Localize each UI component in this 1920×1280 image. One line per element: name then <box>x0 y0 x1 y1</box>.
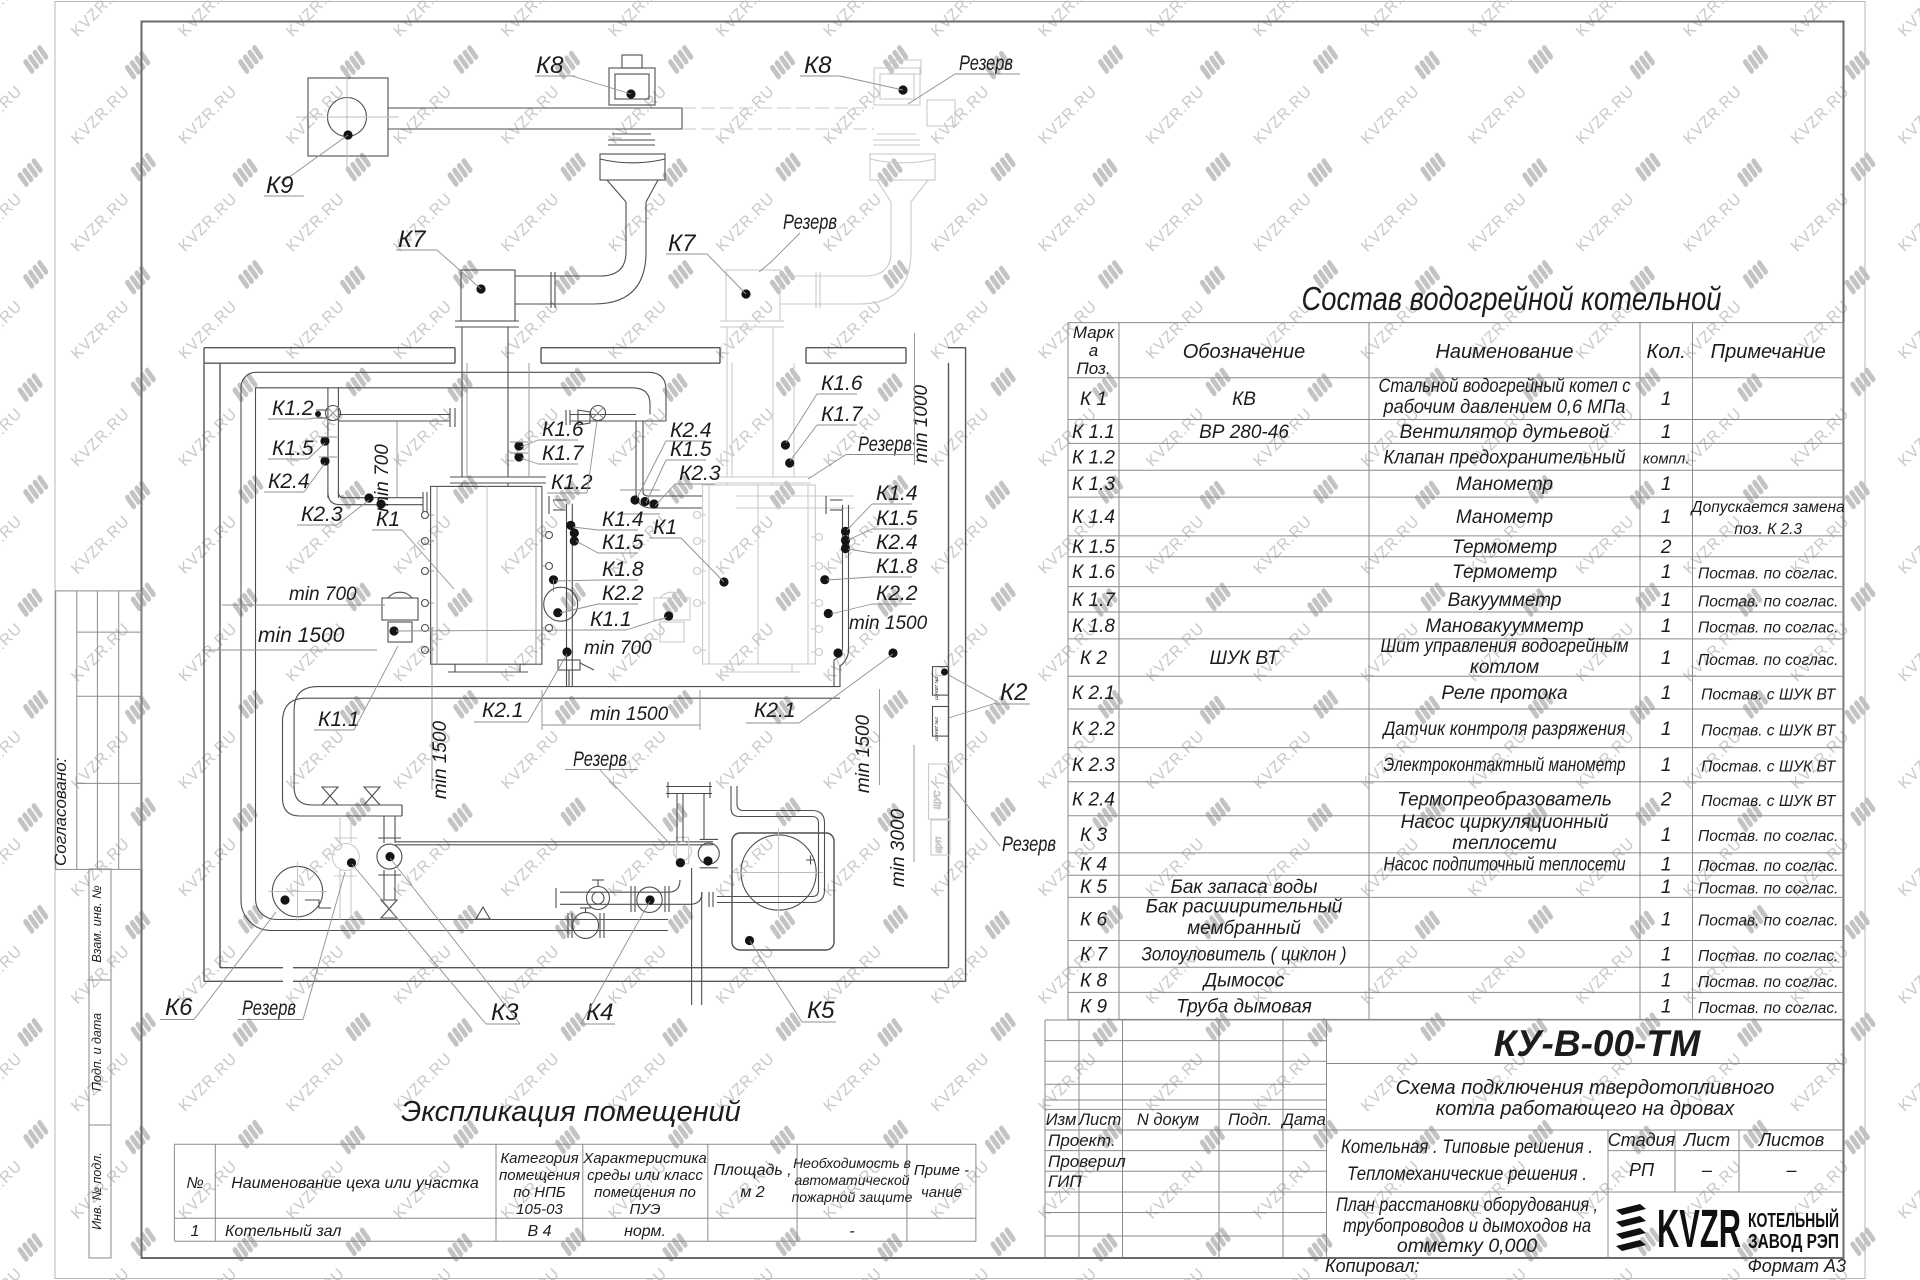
svg-text:К2.3: К2.3 <box>301 503 343 526</box>
svg-text:К 1.7: К 1.7 <box>1072 590 1116 611</box>
svg-text:КВ: КВ <box>1232 389 1256 410</box>
svg-text:Подп.: Подп. <box>1228 1111 1272 1129</box>
svg-text:-: - <box>849 1223 854 1240</box>
svg-text:–: – <box>1785 1160 1797 1180</box>
svg-text:рабочим давлением 0,6 МПа: рабочим давлением 0,6 МПа <box>1383 397 1626 418</box>
svg-text:Марк: Марк <box>1073 323 1115 342</box>
svg-text:Котельная . Типовые решения .: Котельная . Типовые решения . <box>1341 1136 1593 1158</box>
svg-text:а: а <box>1089 341 1098 360</box>
svg-text:чание: чание <box>921 1184 962 1201</box>
svg-text:среды или класс: среды или класс <box>587 1167 703 1184</box>
svg-text:1: 1 <box>1661 648 1672 669</box>
svg-text:КОТЕЛЬНЫЙ: КОТЕЛЬНЫЙ <box>1748 1208 1839 1232</box>
svg-text:К 1.1: К 1.1 <box>1072 422 1115 443</box>
svg-text:1: 1 <box>1661 683 1672 704</box>
svg-text:Подп. и дата: Подп. и дата <box>90 1013 104 1091</box>
svg-text:ВР 280-46: ВР 280-46 <box>1199 422 1289 443</box>
svg-text:min 1500: min 1500 <box>853 714 874 793</box>
svg-text:ШУК ВТ: ШУК ВТ <box>1209 648 1280 669</box>
svg-text:К8: К8 <box>536 52 564 79</box>
svg-text:ШУКВТ №2: ШУКВТ №2 <box>934 717 939 741</box>
svg-text:Резерв: Резерв <box>1002 833 1056 856</box>
svg-text:min 700: min 700 <box>289 584 357 605</box>
svg-text:Изм: Изм <box>1046 1111 1077 1129</box>
svg-text:min 700: min 700 <box>584 638 652 659</box>
svg-text:Шит управления водогрейным: Шит управления водогрейным <box>1381 636 1629 657</box>
svg-text:К 1.2: К 1.2 <box>1072 447 1115 468</box>
svg-text:К1.6: К1.6 <box>821 372 863 395</box>
svg-text:К1.4: К1.4 <box>876 482 918 505</box>
svg-text:Лист: Лист <box>1683 1130 1730 1150</box>
svg-text:Примечание: Примечание <box>1711 341 1826 363</box>
svg-text:К2.2: К2.2 <box>876 582 918 605</box>
svg-text:Термопреобразователь: Термопреобразователь <box>1397 789 1612 810</box>
svg-text:ЩУС: ЩУС <box>933 791 942 809</box>
svg-text:Резерв: Резерв <box>783 211 837 234</box>
svg-text:компл.: компл. <box>1643 450 1690 467</box>
svg-text:котла работающего на дровах: котла работающего на дровах <box>1436 1098 1736 1120</box>
svg-text:К2.3: К2.3 <box>679 462 721 485</box>
svg-text:Проект.: Проект. <box>1048 1131 1116 1150</box>
svg-text:ПУЭ: ПУЭ <box>629 1201 660 1218</box>
svg-text:Насос подпиточный теплосети: Насос подпиточный теплосети <box>1384 855 1626 876</box>
svg-text:К1.8: К1.8 <box>602 558 644 581</box>
svg-text:котлом: котлом <box>1470 657 1539 678</box>
svg-text:Листов: Листов <box>1758 1130 1825 1150</box>
svg-text:помещения по: помещения по <box>594 1184 696 1201</box>
svg-text:min 1500: min 1500 <box>258 624 345 647</box>
svg-text:м 2: м 2 <box>740 1184 764 1201</box>
svg-text:Дымосос: Дымосос <box>1202 970 1285 991</box>
svg-text:min 1500: min 1500 <box>590 704 669 725</box>
svg-text:К1.1: К1.1 <box>590 608 632 631</box>
svg-text:К6: К6 <box>165 994 193 1021</box>
svg-text:К2.1: К2.1 <box>754 699 796 722</box>
svg-text:Постав. по соглас.: Постав. по соглас. <box>1698 974 1838 991</box>
svg-text:норм.: норм. <box>624 1223 666 1240</box>
svg-text:Датчик контроля разряжения: Датчик контроля разряжения <box>1382 719 1626 740</box>
svg-text:Манометр: Манометр <box>1456 474 1553 495</box>
svg-text:Вентилятор дутьевой: Вентилятор дутьевой <box>1400 422 1610 443</box>
svg-text:К 9: К 9 <box>1080 996 1107 1017</box>
svg-text:Согласовано:: Согласовано: <box>51 757 70 866</box>
svg-text:Резерв: Резерв <box>858 433 912 456</box>
svg-text:Лист: Лист <box>1078 1111 1121 1129</box>
svg-text:К1.5: К1.5 <box>670 438 712 461</box>
svg-text:К1.4: К1.4 <box>602 508 644 531</box>
svg-text:Постав. по соглас.: Постав. по соглас. <box>1698 619 1838 636</box>
svg-text:2: 2 <box>1660 537 1672 558</box>
svg-text:Постав. с ШУК ВТ: Постав. с ШУК ВТ <box>1701 793 1837 810</box>
svg-text:Проверил: Проверил <box>1048 1152 1126 1171</box>
svg-text:Постав. с ШУК ВТ: Постав. с ШУК ВТ <box>1701 722 1837 739</box>
svg-text:теплосети: теплосети <box>1452 833 1557 854</box>
svg-text:КУ-В-00-ТМ: КУ-В-00-ТМ <box>1494 1023 1702 1064</box>
svg-text:К7: К7 <box>398 226 427 253</box>
svg-text:К 2.2: К 2.2 <box>1072 719 1115 740</box>
svg-text:2: 2 <box>1660 789 1672 810</box>
svg-text:К1.8: К1.8 <box>876 555 918 578</box>
svg-text:К2.4: К2.4 <box>268 470 310 493</box>
svg-text:К1.7: К1.7 <box>542 442 585 465</box>
svg-text:Состав водогрейной котельной: Состав водогрейной котельной <box>1302 280 1722 317</box>
svg-text:1: 1 <box>1661 970 1672 991</box>
svg-text:отметку 0,000: отметку 0,000 <box>1397 1235 1537 1257</box>
svg-text:Насос циркуляционный: Насос циркуляционный <box>1401 812 1609 833</box>
svg-text:К 6: К 6 <box>1080 910 1107 931</box>
svg-text:1: 1 <box>1661 719 1672 740</box>
svg-text:К1.5: К1.5 <box>272 437 314 460</box>
svg-text:1: 1 <box>1661 944 1672 965</box>
svg-text:пожарной защите: пожарной защите <box>792 1189 913 1205</box>
svg-text:Поз.: Поз. <box>1076 359 1110 378</box>
svg-text:К2.4: К2.4 <box>876 531 918 554</box>
svg-text:Реле протока: Реле протока <box>1441 683 1567 704</box>
svg-text:1: 1 <box>1661 616 1672 637</box>
svg-text:1: 1 <box>1661 855 1672 876</box>
svg-text:ЩУП: ЩУП <box>936 836 943 853</box>
svg-text:К3: К3 <box>491 999 519 1026</box>
svg-text:К 5: К 5 <box>1080 877 1107 898</box>
svg-text:К 1.5: К 1.5 <box>1072 537 1115 558</box>
svg-text:Термометр: Термометр <box>1452 537 1557 558</box>
svg-text:N докум: N докум <box>1137 1111 1199 1129</box>
svg-text:Приме -: Приме - <box>914 1162 969 1179</box>
svg-text:Термометр: Термометр <box>1452 562 1557 583</box>
svg-text:Постав. по соглас.: Постав. по соглас. <box>1698 652 1838 669</box>
svg-text:К 8: К 8 <box>1080 970 1107 991</box>
svg-text:К 3: К 3 <box>1080 825 1107 846</box>
svg-text:Копировал:: Копировал: <box>1325 1256 1420 1276</box>
svg-text:К1: К1 <box>376 508 400 531</box>
svg-text:Тепломеханические решения .: Тепломеханические решения . <box>1347 1163 1587 1185</box>
svg-text:min 1500: min 1500 <box>849 613 928 634</box>
svg-text:Площадь ,: Площадь , <box>713 1162 791 1179</box>
svg-text:К2.1: К2.1 <box>482 699 524 722</box>
svg-text:К 4: К 4 <box>1080 855 1107 876</box>
svg-text:К 1: К 1 <box>1080 389 1107 410</box>
svg-text:помещения: помещения <box>499 1167 580 1184</box>
svg-text:1: 1 <box>1661 877 1672 898</box>
svg-text:Мановакуумметр: Мановакуумметр <box>1425 616 1583 637</box>
svg-text:К4: К4 <box>586 999 614 1026</box>
svg-text:К9: К9 <box>266 172 294 199</box>
svg-text:Постав. с ШУК ВТ: Постав. с ШУК ВТ <box>1701 759 1837 776</box>
svg-text:Резерв: Резерв <box>959 52 1013 75</box>
svg-text:1: 1 <box>1661 996 1672 1017</box>
svg-text:Дата: Дата <box>1280 1111 1326 1129</box>
svg-text:К1.5: К1.5 <box>876 507 918 530</box>
svg-text:Наименование цеха или участка: Наименование цеха или участка <box>231 1175 479 1192</box>
svg-text:1: 1 <box>1661 755 1672 776</box>
svg-text:К1: К1 <box>653 516 677 539</box>
svg-text:Манометр: Манометр <box>1456 507 1553 528</box>
svg-text:ШУКВТ №1: ШУКВТ №1 <box>934 676 939 700</box>
svg-text:План расстановки оборудования: План расстановки оборудования , <box>1336 1194 1598 1216</box>
svg-text:–: – <box>1701 1160 1713 1180</box>
svg-text:min 3000: min 3000 <box>888 808 909 887</box>
svg-text:1: 1 <box>1661 507 1672 528</box>
svg-text:Обозначение: Обозначение <box>1183 341 1306 363</box>
svg-text:поз. К 2.3: поз. К 2.3 <box>1734 521 1802 538</box>
svg-text:Постав. по соглас.: Постав. по соглас. <box>1698 828 1838 845</box>
svg-text:1: 1 <box>1661 422 1672 443</box>
svg-text:Золоуловитель ( циклон ): Золоуловитель ( циклон ) <box>1142 944 1347 965</box>
svg-text:В 4: В 4 <box>527 1223 551 1240</box>
svg-text:Постав. по соглас.: Постав. по соглас. <box>1698 948 1838 965</box>
svg-text:К 2.4: К 2.4 <box>1072 789 1115 810</box>
svg-text:К 2.1: К 2.1 <box>1072 683 1115 704</box>
svg-text:трубопроводов и дымоходов на: трубопроводов и дымоходов на <box>1343 1215 1591 1237</box>
svg-text:Котельный зал: Котельный зал <box>225 1223 341 1240</box>
svg-text:min 700: min 700 <box>372 444 393 512</box>
svg-text:К 2.3: К 2.3 <box>1072 755 1115 776</box>
svg-text:Резерв: Резерв <box>573 748 627 771</box>
svg-text:Стадия: Стадия <box>1608 1130 1676 1150</box>
svg-text:ГИП: ГИП <box>1048 1172 1082 1191</box>
svg-text:автоматической: автоматической <box>794 1172 909 1188</box>
svg-text:105-03: 105-03 <box>516 1201 563 1218</box>
svg-text:Схема подключения твердотоплив: Схема подключения твердотопливного <box>1396 1077 1775 1099</box>
svg-text:К 7: К 7 <box>1080 944 1108 965</box>
svg-text:К1.7: К1.7 <box>821 403 864 426</box>
svg-text:К8: К8 <box>804 52 832 79</box>
svg-text:К 1.6: К 1.6 <box>1072 562 1115 583</box>
svg-text:№: № <box>186 1175 203 1192</box>
svg-text:Необходимость в: Необходимость в <box>793 1155 911 1171</box>
svg-text:К5: К5 <box>807 997 835 1024</box>
svg-text:Стальной водогрейный котел с: Стальной водогрейный котел с <box>1379 376 1631 397</box>
svg-text:РП: РП <box>1629 1160 1655 1180</box>
svg-text:ЗАВОД РЭП: ЗАВОД РЭП <box>1748 1231 1839 1253</box>
svg-text:Постав. по соглас.: Постав. по соглас. <box>1698 913 1838 930</box>
svg-text:Инв. № подл.: Инв. № подл. <box>90 1152 104 1230</box>
svg-text:1: 1 <box>1661 562 1672 583</box>
svg-text:Наименование: Наименование <box>1435 341 1573 363</box>
svg-text:Постав. по соглас.: Постав. по соглас. <box>1698 880 1838 897</box>
svg-text:Бак запаса воды: Бак запаса воды <box>1170 877 1317 898</box>
svg-text:Формат А3: Формат А3 <box>1748 1256 1847 1276</box>
svg-text:Бак расширительный: Бак расширительный <box>1146 897 1343 918</box>
svg-text:Постав. по соглас.: Постав. по соглас. <box>1698 593 1838 610</box>
svg-text:К 2: К 2 <box>1080 648 1107 669</box>
svg-text:Постав. с ШУК ВТ: Постав. с ШУК ВТ <box>1701 687 1837 704</box>
svg-text:К7: К7 <box>668 230 697 257</box>
svg-text:1: 1 <box>1661 590 1672 611</box>
svg-text:Труба дымовая: Труба дымовая <box>1176 996 1312 1017</box>
svg-text:Категория: Категория <box>500 1150 578 1167</box>
svg-text:К2: К2 <box>1000 679 1028 706</box>
svg-text:К1.5: К1.5 <box>602 531 644 554</box>
svg-text:К1.2: К1.2 <box>551 471 593 494</box>
svg-text:min 1500: min 1500 <box>430 720 451 799</box>
svg-text:К1.2: К1.2 <box>272 397 314 420</box>
svg-text:Экспликация помещений: Экспликация помещений <box>401 1096 741 1128</box>
svg-text:Допускается замена: Допускается замена <box>1690 499 1845 516</box>
svg-text:К 1.8: К 1.8 <box>1072 616 1115 637</box>
svg-text:Кол.: Кол. <box>1647 341 1686 363</box>
svg-text:мембранный: мембранный <box>1187 918 1301 939</box>
svg-text:1: 1 <box>191 1223 200 1240</box>
svg-text:К2.2: К2.2 <box>602 582 644 605</box>
svg-text:Постав. по соглас.: Постав. по соглас. <box>1698 858 1838 875</box>
svg-text:1: 1 <box>1661 389 1672 410</box>
svg-text:KVZR: KVZR <box>1657 1199 1741 1259</box>
svg-text:Резерв: Резерв <box>242 997 296 1020</box>
svg-text:Клапан предохранительный: Клапан предохранительный <box>1384 447 1626 468</box>
svg-text:по НПБ: по НПБ <box>513 1184 565 1201</box>
svg-text:Характеристика: Характеристика <box>582 1150 707 1167</box>
svg-text:1: 1 <box>1661 825 1672 846</box>
svg-text:К1.1: К1.1 <box>318 708 360 731</box>
svg-text:Вакуумметр: Вакуумметр <box>1448 590 1562 611</box>
svg-text:1: 1 <box>1661 474 1672 495</box>
svg-text:Постав. по соглас.: Постав. по соглас. <box>1698 566 1838 583</box>
svg-text:К 1.3: К 1.3 <box>1072 474 1115 495</box>
svg-text:Взам. инв. №: Взам. инв. № <box>90 885 104 963</box>
svg-text:Электроконтактный манометр: Электроконтактный манометр <box>1384 755 1626 776</box>
svg-text:Постав. по соглас.: Постав. по соглас. <box>1698 1000 1838 1017</box>
svg-text:К 1.4: К 1.4 <box>1072 507 1115 528</box>
svg-text:1: 1 <box>1661 910 1672 931</box>
svg-text:К1.6: К1.6 <box>542 418 584 441</box>
